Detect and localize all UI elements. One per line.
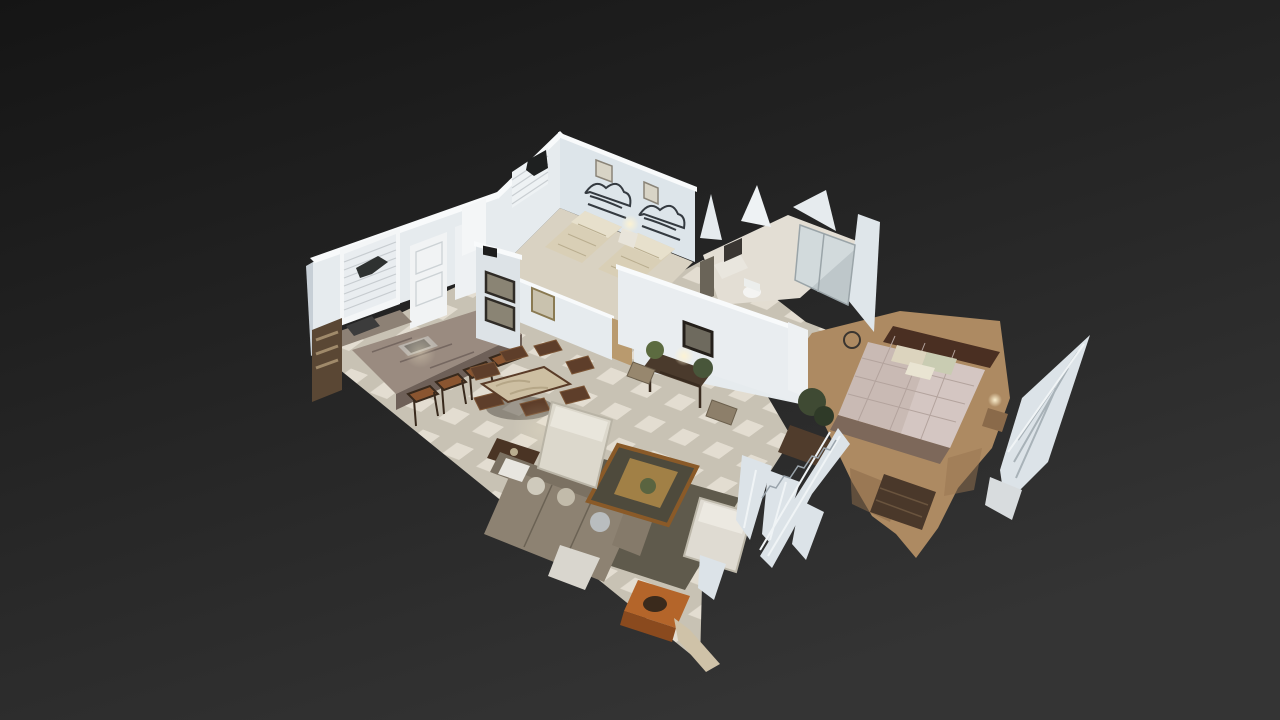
houseplant (646, 341, 664, 359)
table-lamp-glow (674, 346, 694, 366)
undercounter-glow (404, 336, 436, 368)
houseplant (693, 358, 713, 378)
dollhouse-model-canvas[interactable] (0, 0, 1280, 720)
master-door-leaf (788, 322, 808, 398)
throw-pillow (527, 477, 545, 495)
guest-lamp-glow (621, 215, 639, 233)
throw-pillow (557, 488, 575, 506)
end-table-cutout (643, 596, 667, 612)
throw-pillow (590, 512, 610, 532)
end-table-decor (510, 448, 518, 456)
houseplant-large (814, 406, 834, 426)
dollhouse-viewport[interactable] (0, 0, 1280, 720)
table-centerpiece (640, 478, 656, 494)
nightstand-lamp-glow (988, 393, 1002, 407)
